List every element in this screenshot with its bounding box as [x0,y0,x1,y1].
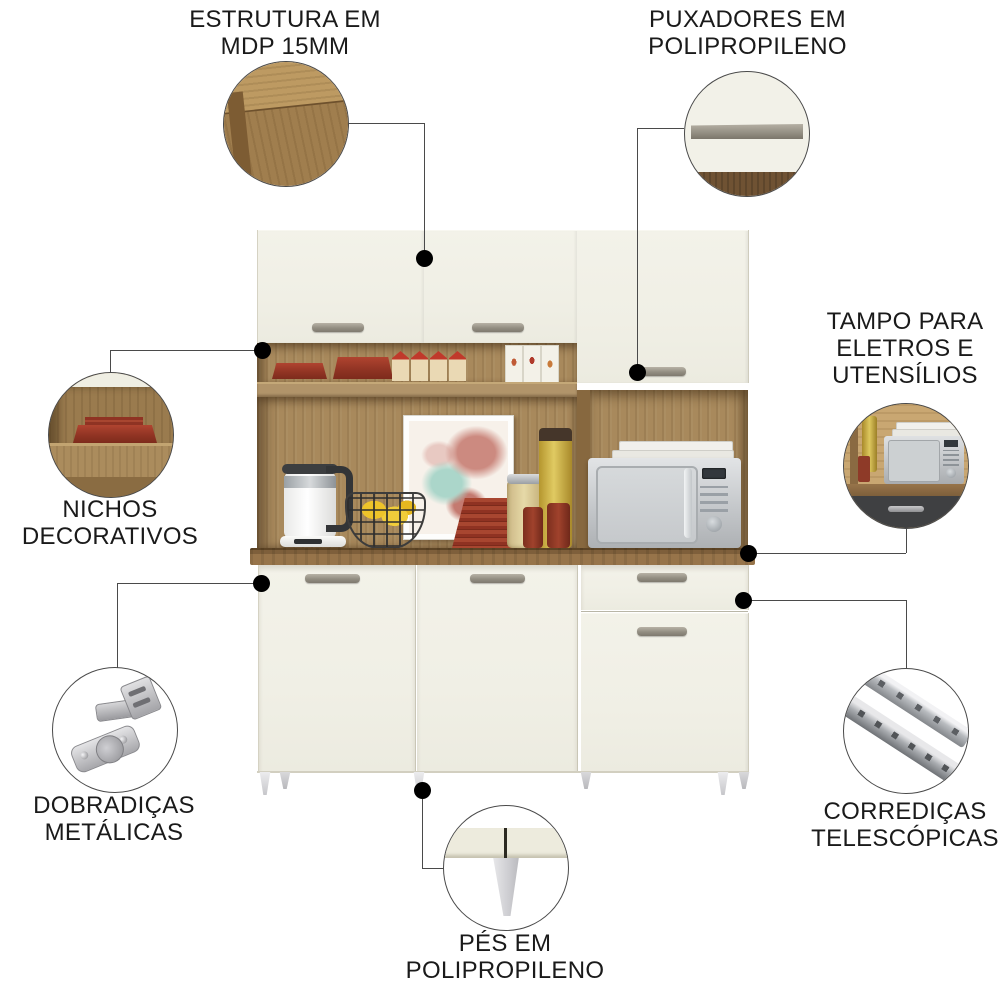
cabinet-leg [716,772,730,795]
microwave-door-handle [684,468,692,538]
drawer-front [581,565,749,610]
upper-left-door-handle [312,323,364,332]
leader-line-estrutura [347,123,424,124]
anchor-dot-dobradicas [253,575,270,592]
label-line: ELETROS E [795,335,1000,362]
leader-line-pes [422,790,423,868]
decorative-niche [257,343,577,383]
lower-middle-door [417,565,578,772]
anchor-dot-estrutura [416,250,433,267]
leader-line-puxadores [637,128,638,372]
label-line: DECORATIVOS [10,523,210,550]
leader-line-pes [422,868,444,869]
red-shaker [858,456,870,482]
detail-circle-corredicas [843,668,969,794]
leader-line-puxadores [637,128,684,129]
container-lid [539,428,572,441]
microwave-buttons-mini [943,450,959,466]
door-underside [49,373,173,387]
red-shaker [547,503,570,548]
niche-side-panel [850,404,858,494]
detail-circle-tampo [843,403,969,529]
callout-label-tampo: TAMPO PARA ELETROS E UTENSÍLIOS [795,308,1000,389]
leader-line-nichos [110,350,111,373]
leader-line-tampo [748,553,906,554]
callout-label-corredicas: CORREDIÇAS TELESCÓPICAS [805,798,1000,852]
label-line: ESTRUTURA EM [165,6,405,33]
lower-left-door-handle [305,574,360,583]
door-bottom-wood-edge [685,172,809,196]
plastic-foot-photo [490,858,522,916]
microwave-door [596,466,698,544]
leader-line-nichos [110,350,262,351]
drawer-handle [637,573,687,582]
callout-label-pes: PÉS EM POLIPROPILENO [385,930,625,984]
leader-line-dobradicas [117,583,261,584]
door-gap-seam [504,828,507,858]
label-line: POLIPROPILENO [625,33,870,60]
red-tray-mini [73,425,157,443]
detail-circle-puxadores [684,71,810,197]
drawer-handle-mini [888,506,924,512]
microwave-mini [884,436,964,484]
upper-right-door [577,230,749,383]
anchor-dot-puxadores [629,364,646,381]
microwave-display [702,468,726,479]
kitchen-cabinet [257,230,748,795]
countertop [250,548,755,565]
label-line: MDP 15MM [165,33,405,60]
leader-line-estrutura [424,123,425,258]
red-tray [333,357,393,379]
callout-label-puxadores: PUXADORES EM POLIPROPILENO [625,6,870,60]
kettle-base-display [294,539,322,544]
niche-shelf-board [257,382,577,397]
carton-box [449,351,466,381]
detail-circle-pes [443,805,569,931]
microwave-buttons [700,486,728,512]
cabinet-leg [579,772,593,789]
cabinet-leg [278,772,292,789]
upper-middle-door-handle [472,323,524,332]
carton-box [392,351,409,381]
label-line: TAMPO PARA [795,308,1000,335]
leader-line-corredicas [906,600,907,668]
lower-right-door-handle [637,627,687,636]
red-shaker [523,507,543,548]
cabinet-leg [258,772,272,795]
microwave [588,458,741,548]
food-package [523,345,541,383]
niche-shelf-mini [49,443,173,477]
anchor-dot-nichos [254,342,271,359]
carton-box [411,351,428,381]
lower-right-door [581,613,749,772]
cabinet-bottom-edge [257,771,748,773]
label-line: PUXADORES EM [625,6,870,33]
red-plates-mini [85,417,143,425]
label-line: TELESCÓPICAS [805,825,1000,852]
food-package [541,345,559,383]
countertop-band [844,484,968,496]
label-line: DOBRADIÇAS [14,792,214,819]
lower-middle-door-handle [470,574,525,583]
upper-right-door-handle [640,367,686,376]
anchor-dot-tampo [740,545,757,562]
label-line: CORREDIÇAS [805,798,1000,825]
electric-kettle [280,462,346,545]
microwave-knob [706,516,722,532]
metal-hinge-photo [53,675,178,784]
detail-circle-estrutura [223,61,349,187]
label-line: METÁLICAS [14,819,214,846]
carton-box [430,351,447,381]
leader-line-tampo [906,527,907,553]
label-line: POLIPROPILENO [385,957,625,984]
callout-label-dobradicas: DOBRADIÇAS METÁLICAS [14,792,214,846]
callout-label-estrutura: ESTRUTURA EM MDP 15MM [165,6,405,60]
red-tray [272,363,327,379]
detail-circle-nichos [48,372,174,498]
label-line: PÉS EM [385,930,625,957]
label-line: NICHOS [10,496,210,523]
leader-line-dobradicas [117,583,118,669]
label-line: UTENSÍLIOS [795,362,1000,389]
niche-lower-wood [49,477,173,497]
lower-left-door [258,565,416,772]
food-package [505,345,523,383]
door-handle-photo [691,124,803,139]
anchor-dot-corredicas [735,592,752,609]
drawer-seam [581,611,748,612]
leader-line-corredicas [743,600,906,601]
microwave-display-mini [944,440,958,447]
cabinet-leg [737,772,751,789]
microwave-door-mini [888,440,940,482]
lower-dark-drawer [844,496,968,528]
detail-circle-dobradicas [52,667,178,793]
microwave-knob-mini [946,468,956,478]
callout-label-nichos: NICHOS DECORATIVOS [10,496,210,550]
product-feature-infographic: ESTRUTURA EM MDP 15MM PUXADORES EM POLIP… [0,0,1000,1000]
anchor-dot-pes [414,782,431,799]
